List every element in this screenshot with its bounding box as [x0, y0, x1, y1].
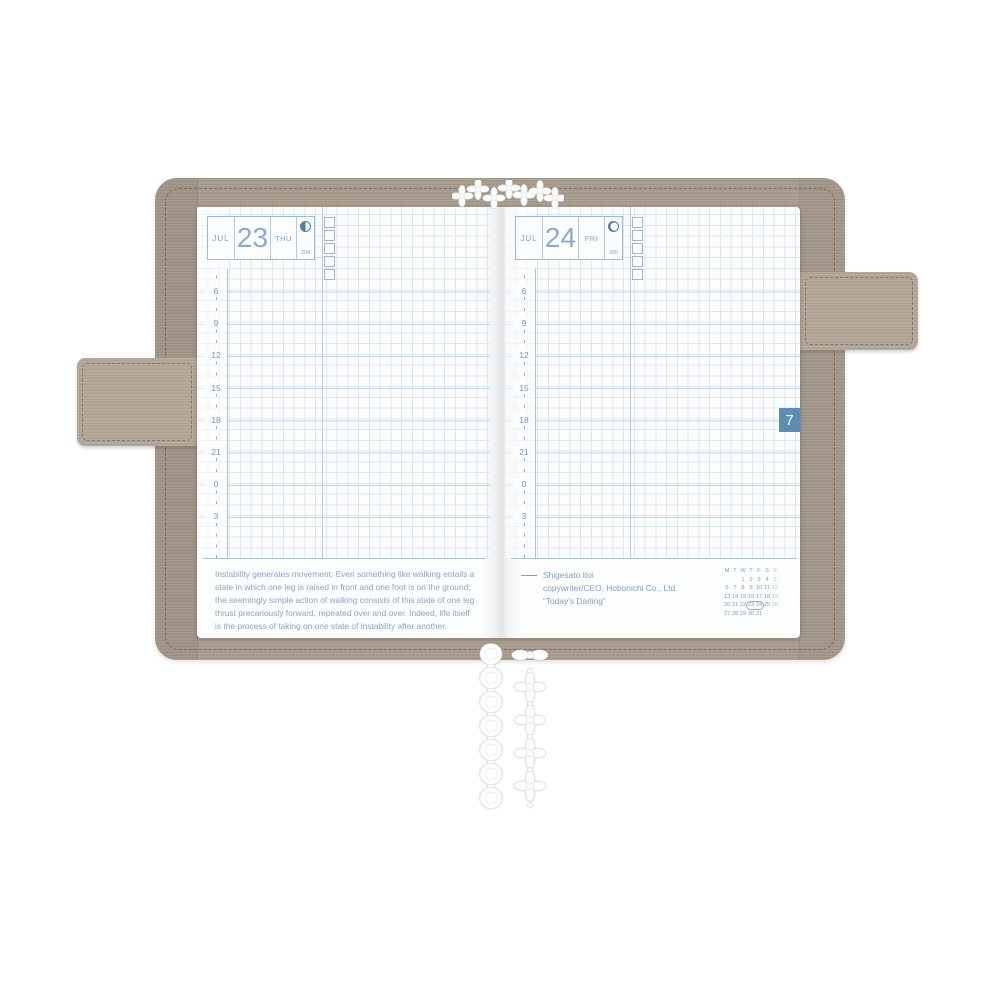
planner-product-photo: 691215182103 JUL 23 THU 204 Instability …: [0, 0, 1000, 1000]
checkbox: [324, 217, 335, 228]
calendar-day: 11: [763, 584, 771, 593]
time-label: 0: [205, 478, 227, 490]
checkbox: [324, 269, 335, 280]
time-label: 21: [513, 446, 535, 458]
calendar-day-header: W: [739, 567, 747, 576]
calendar-day: 3: [755, 576, 763, 585]
calendar-day-header: M: [723, 567, 731, 576]
calendar-day: 18: [763, 593, 771, 602]
calendar-day: 20: [723, 601, 731, 610]
time-label: 15: [205, 382, 227, 394]
time-label: 9: [513, 317, 535, 329]
quote-line: is the process of taking on one state of…: [215, 620, 474, 633]
footer-rule: [203, 558, 486, 559]
time-label: 21: [205, 446, 227, 458]
calendar-day: 17: [755, 593, 763, 602]
day-of-year: 204: [301, 250, 310, 256]
weekday-label: THU: [271, 217, 297, 259]
month-index-tab: 7: [779, 408, 800, 432]
attribution-author: Shigesato Itoi: [543, 569, 678, 582]
weekday-label: FRI: [579, 217, 605, 259]
quote-line: the seemingly simple action of walking c…: [215, 594, 474, 607]
checkbox: [632, 256, 643, 267]
calendar-day: 5: [771, 576, 779, 585]
calendar-day: 1: [739, 576, 747, 585]
calendar-day: 8: [739, 584, 747, 593]
calendar-day: 31: [755, 610, 763, 619]
time-label: 9: [205, 317, 227, 329]
calendar-day: [731, 576, 739, 585]
quote-line: Instability generates movement. Even som…: [215, 568, 474, 581]
calendar-day: 9: [747, 584, 755, 593]
calendar-day: [723, 576, 731, 585]
quote-line: thrust precariously forward, repeated ov…: [215, 607, 474, 620]
calendar-day: 12: [771, 584, 779, 593]
strap-stitching: [82, 363, 192, 441]
month-label: JUL: [516, 217, 543, 259]
quote-attribution: Shigesato Itoi copywriter/CEO, Hobonichi…: [543, 569, 678, 609]
calendar-day: 30: [747, 610, 755, 619]
pen-holder-strap-left: [77, 358, 197, 446]
task-column-rule: [322, 207, 323, 559]
page-july-24: 691215182103 JUL 24 FRI 205 Shigesato It…: [505, 207, 800, 638]
date-header: JUL 24 FRI 205: [515, 216, 623, 260]
calendar-day: 15: [739, 593, 747, 602]
day-number: 23: [235, 217, 271, 259]
scallop-lace-ribbon: [477, 641, 507, 824]
calendar-day-header: T: [731, 567, 739, 576]
calendar-day: [763, 610, 771, 619]
hour-gridlines: [505, 291, 800, 518]
time-column-rule: [535, 269, 536, 559]
time-label: 0: [513, 478, 535, 490]
strap-stitching: [805, 277, 913, 345]
calendar-day: 19: [771, 593, 779, 602]
calendar-day: 29: [739, 610, 747, 619]
calendar-day: 25: [763, 601, 771, 610]
page-july-23: 691215182103 JUL 23 THU 204 Instability …: [197, 207, 490, 638]
time-label: 6: [513, 285, 535, 297]
time-label: 3: [513, 510, 535, 522]
calendar-highlight: [746, 601, 764, 610]
attribution-role: copywriter/CEO, Hobonichi Co., Ltd.: [543, 582, 678, 595]
checkbox-column: [632, 217, 643, 282]
mini-month-calendar: MTWTFSS123456789101112131415161718192021…: [723, 567, 779, 619]
calendar-day: 21: [731, 601, 739, 610]
time-label: 3: [205, 510, 227, 522]
day-of-year: 205: [609, 250, 618, 256]
checkbox: [324, 230, 335, 241]
time-label: 12: [205, 349, 227, 361]
calendar-day: 14: [731, 593, 739, 602]
date-header: JUL 23 THU 204: [207, 216, 315, 260]
checkbox: [632, 217, 643, 228]
calendar-day: 27: [723, 610, 731, 619]
time-label: 18: [205, 414, 227, 426]
checkbox: [324, 256, 335, 267]
calendar-day: 2: [747, 576, 755, 585]
calendar-day: 4: [763, 576, 771, 585]
hour-gridlines: [197, 291, 490, 518]
calendar-day: [771, 610, 779, 619]
grid-paper-area: 691215182103 JUL 24 FRI 205: [505, 207, 800, 559]
pen-holder-strap-right: [800, 272, 918, 350]
time-label: 12: [513, 349, 535, 361]
daily-quote: Instability generates movement. Even som…: [215, 568, 474, 633]
open-page-spread: 691215182103 JUL 23 THU 204 Instability …: [197, 207, 800, 638]
day-number: 24: [543, 217, 579, 259]
moon-phase-cell: 205: [605, 217, 622, 259]
checkbox: [632, 230, 643, 241]
calendar-day: 13: [723, 593, 731, 602]
checkbox: [324, 243, 335, 254]
calendar-day: 16: [747, 593, 755, 602]
grid-paper-area: 691215182103 JUL 23 THU 204: [197, 207, 490, 559]
checkbox: [632, 243, 643, 254]
time-column-rule: [227, 269, 228, 559]
time-label: 15: [513, 382, 535, 394]
month-label: JUL: [208, 217, 235, 259]
time-label: 6: [205, 285, 227, 297]
calendar-day-header: T: [747, 567, 755, 576]
checkbox: [632, 269, 643, 280]
calendar-day: 10: [755, 584, 763, 593]
time-label: 18: [513, 414, 535, 426]
task-column-rule: [630, 207, 631, 559]
quote-line: state in which one leg is raised in fron…: [215, 581, 474, 594]
calendar-day: 6: [723, 584, 731, 593]
last-quarter-moon-icon: [300, 221, 311, 232]
moon-phase-cell: 204: [297, 217, 314, 259]
attribution-source: “Today’s Darling”: [543, 595, 678, 608]
calendar-day: 28: [731, 610, 739, 619]
calendar-day-header: F: [755, 567, 763, 576]
lace-trim-top: [452, 180, 564, 213]
calendar-day-header: S: [763, 567, 771, 576]
calendar-day: 26: [771, 601, 779, 610]
calendar-day: 7: [731, 584, 739, 593]
waning-crescent-moon-icon: [608, 221, 619, 232]
attribution-dash: [521, 575, 537, 576]
checkbox-column: [324, 217, 335, 282]
flower-lace-ribbon: [511, 645, 549, 820]
footer-rule: [511, 558, 796, 559]
calendar-day-header: S: [771, 567, 779, 576]
